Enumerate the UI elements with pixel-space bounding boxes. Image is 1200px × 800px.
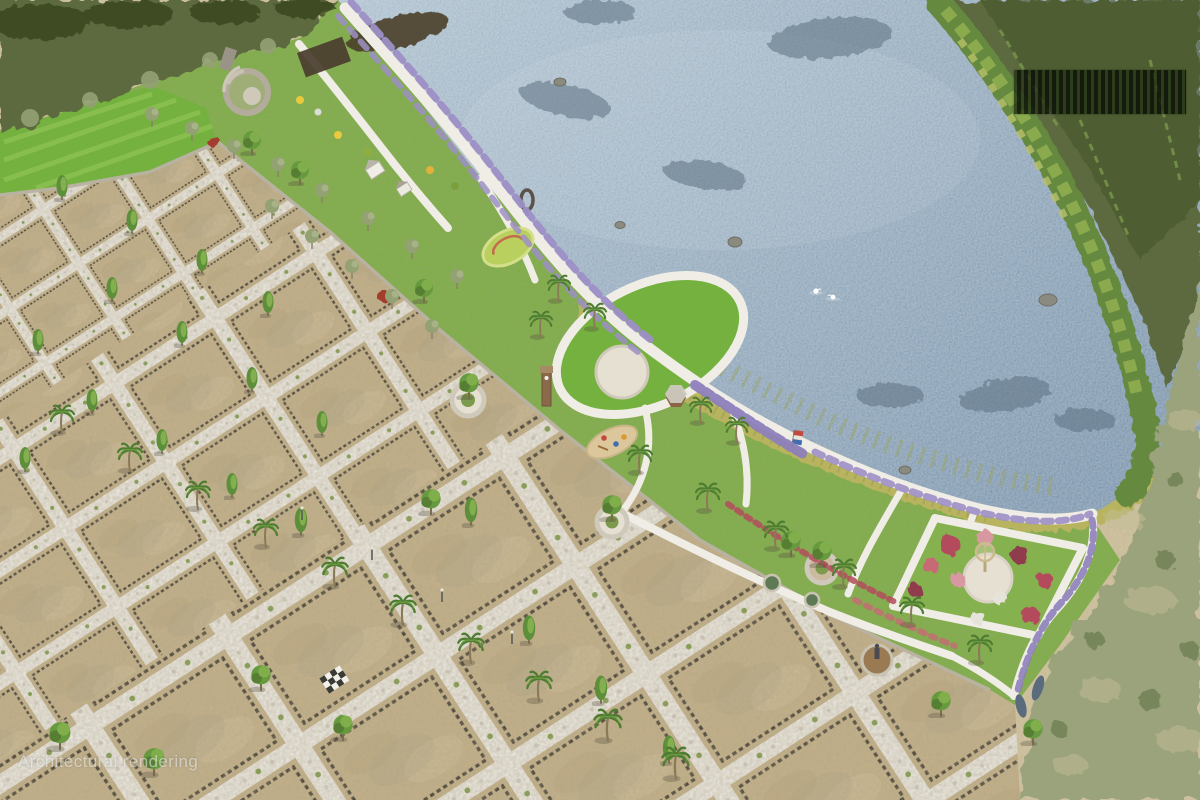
watermark-text: Architectural rendering <box>18 752 198 772</box>
redacted-watermark-block <box>1014 70 1186 114</box>
aerial-rendering-stage: Architectural rendering <box>0 0 1200 800</box>
clock-tower <box>540 366 553 406</box>
rendering-canvas <box>0 0 1200 800</box>
statue <box>862 644 892 675</box>
